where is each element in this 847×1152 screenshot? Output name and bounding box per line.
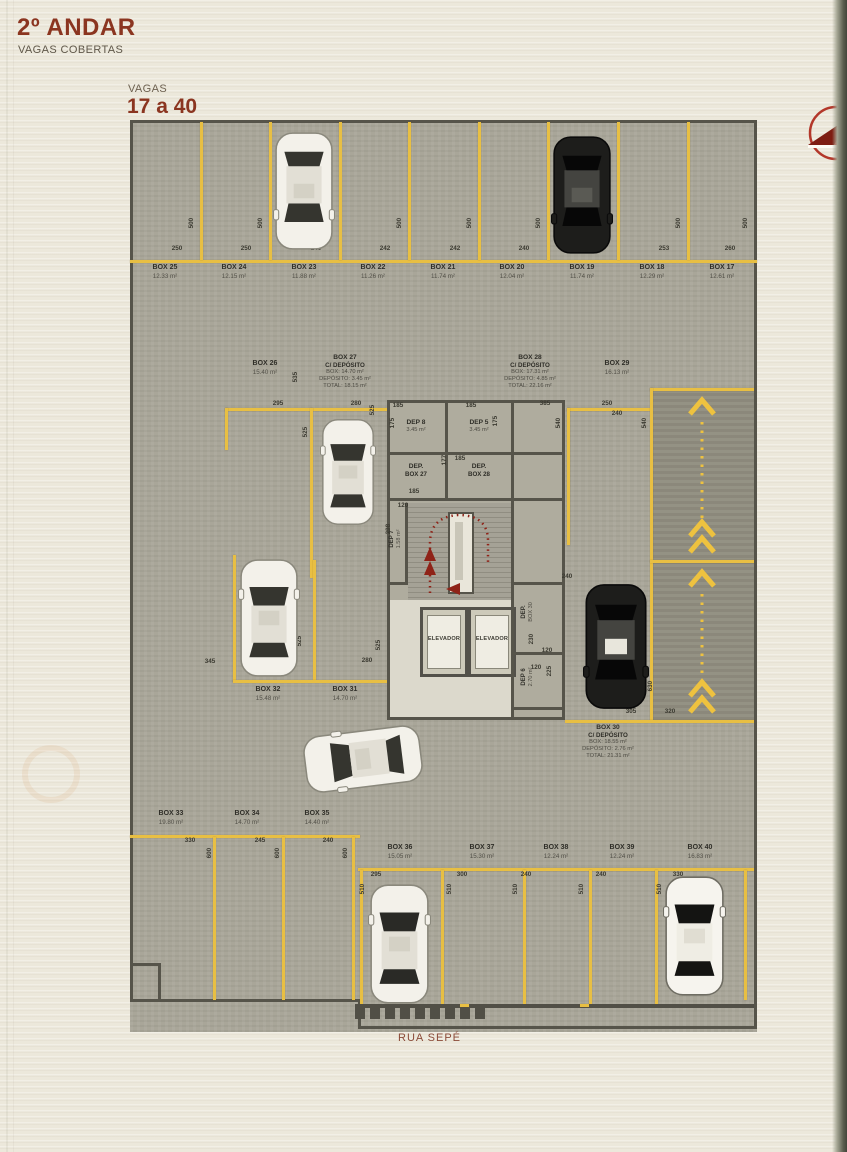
elevator-shaft: ELEVADOR xyxy=(420,607,468,677)
wall xyxy=(405,503,408,585)
wall xyxy=(358,1026,757,1029)
box-label: BOX 2211.26 m² xyxy=(361,264,386,281)
dim-label: 500 xyxy=(676,211,682,235)
box-label: BOX 3912.24 m² xyxy=(610,844,635,861)
box-label: BOX 1911.74 m² xyxy=(570,264,595,281)
parking-line xyxy=(589,870,592,1006)
dim-label: 540 xyxy=(642,411,648,435)
parking-line xyxy=(233,555,236,682)
dim-label: 298 xyxy=(386,517,392,541)
dim-label: 500 xyxy=(397,211,403,235)
parking-line xyxy=(200,122,203,260)
dep-box28-label: DEP.BOX 28 xyxy=(468,463,490,478)
elevator-label: ELEVADOR xyxy=(467,636,517,642)
parking-line xyxy=(310,408,313,578)
dim-label: 240 xyxy=(612,411,623,417)
dim-label: 300 xyxy=(457,872,468,878)
wall xyxy=(562,400,565,720)
box-label: BOX 3215.48 m² xyxy=(256,686,281,703)
parking-line xyxy=(547,122,550,260)
parking-line xyxy=(130,260,757,263)
dim-label: 120 xyxy=(398,503,409,509)
parking-line xyxy=(478,122,481,260)
dim-label: 500 xyxy=(743,211,749,235)
parking-line xyxy=(213,837,216,1000)
parking-line xyxy=(567,408,650,411)
wall xyxy=(387,400,390,720)
page-texture-line xyxy=(6,0,8,1152)
dim-label: 230 xyxy=(529,627,535,651)
wall xyxy=(511,400,514,720)
parking-line xyxy=(313,560,316,682)
parking-line xyxy=(617,122,620,260)
car xyxy=(238,557,300,679)
dim-label: 500 xyxy=(467,211,473,235)
dim-label: 320 xyxy=(665,709,676,715)
box-label: BOX 3812.24 m² xyxy=(544,844,569,861)
dim-label: 242 xyxy=(450,246,461,252)
dim-label: 240 xyxy=(596,872,607,878)
dim-label: 120 xyxy=(531,665,542,671)
wall xyxy=(387,582,408,585)
wall xyxy=(130,963,160,966)
car xyxy=(551,132,613,258)
dep5-label: DEP 53.45 m² xyxy=(469,419,488,434)
car xyxy=(583,575,649,718)
box-label: BOX 3414.70 m² xyxy=(235,810,260,827)
car xyxy=(663,872,726,1000)
dim-label: 500 xyxy=(536,211,542,235)
dim-label: 253 xyxy=(659,246,670,252)
car xyxy=(273,128,335,254)
box-label: BOX 2311.88 m² xyxy=(292,264,317,281)
dim-label: 250 xyxy=(172,246,183,252)
parking-line xyxy=(744,870,747,1000)
page-edge-shadow xyxy=(832,0,847,1152)
box-label: BOX 3715.30 m² xyxy=(470,844,495,861)
ramp-arrow-up-icon xyxy=(652,566,752,716)
parking-line xyxy=(687,122,690,260)
dim-label: 240 xyxy=(521,872,532,878)
wall xyxy=(130,999,361,1002)
dim-label: 280 xyxy=(351,401,362,407)
page-title: 2º ANDAR xyxy=(17,14,136,42)
floor-plan: ELEVADOR ELEVADOR DEP 83.45 m² DEP 53.45… xyxy=(130,120,757,1032)
box27-deposito-label: BOX 27C/ DEPÓSITO BOX: 14.70 m²DEPÓSITO:… xyxy=(319,354,371,390)
dim-label: 600 xyxy=(207,841,213,865)
dep-box27-label: DEP.BOX 27 xyxy=(405,463,427,478)
wall xyxy=(387,498,565,501)
dim-label: 345 xyxy=(205,659,216,665)
dim-label: 500 xyxy=(189,211,195,235)
box-label: BOX 1812.29 m² xyxy=(640,264,665,281)
vagas-label: VAGAS xyxy=(128,83,167,95)
dim-label: 535 xyxy=(293,365,299,389)
wall xyxy=(387,717,565,720)
car xyxy=(318,418,378,526)
box-label: BOX 3114.70 m² xyxy=(333,686,358,703)
dim-label: 185 xyxy=(466,403,477,409)
dim-label: 250 xyxy=(241,246,252,252)
dim-label: 185 xyxy=(393,403,404,409)
elevator-label: ELEVADOR xyxy=(419,636,469,642)
dim-label: 510 xyxy=(579,877,585,901)
wall xyxy=(513,707,565,710)
dim-label: 525 xyxy=(303,420,309,444)
dim-label: 525 xyxy=(376,633,382,657)
box-label: BOX 2012.04 m² xyxy=(500,264,525,281)
box-label: BOX 1712.61 m² xyxy=(710,264,735,281)
dim-label: 250 xyxy=(602,401,613,407)
parking-line xyxy=(441,870,444,1006)
dim-label: 510 xyxy=(513,877,519,901)
stair-direction-arrow-icon xyxy=(408,503,511,600)
dep-box30-label: DEP.BOX 30 xyxy=(521,592,535,632)
parking-line xyxy=(650,560,754,563)
box-label: BOX 3514.40 m² xyxy=(305,810,330,827)
dep6-label: DEP 62.70 m² xyxy=(521,657,535,697)
dim-label: 175 xyxy=(493,409,499,433)
elevator-shaft: ELEVADOR xyxy=(468,607,516,677)
parking-line xyxy=(233,680,388,683)
dep8-label: DEP 83.45 m² xyxy=(406,419,425,434)
dim-label: 500 xyxy=(258,211,264,235)
dim-label: 185 xyxy=(409,489,420,495)
dim-label: 600 xyxy=(275,841,281,865)
dim-label: 175 xyxy=(390,411,396,435)
dim-label: 240 xyxy=(562,574,573,580)
dim-label: 120 xyxy=(542,648,553,654)
dim-label: 510 xyxy=(360,877,366,901)
box30-deposito-label: BOX 30C/ DEPÓSITO BOX: 18.55 m²DEPÓSITO:… xyxy=(582,724,634,760)
elevator-cab xyxy=(475,615,509,669)
dim-label: 600 xyxy=(343,841,349,865)
dim-label: 510 xyxy=(447,877,453,901)
curb-mark xyxy=(580,1004,589,1007)
dim-label: 280 xyxy=(362,658,373,664)
curb-mark xyxy=(460,1004,469,1007)
dim-label: 295 xyxy=(371,872,382,878)
sidewalk-ticks xyxy=(355,1008,490,1019)
wall xyxy=(387,452,565,455)
wall xyxy=(513,582,565,585)
box-label: BOX 2111.74 m² xyxy=(431,264,456,281)
parking-line xyxy=(567,408,570,545)
parking-line xyxy=(225,408,387,411)
dim-label: 295 xyxy=(273,401,284,407)
elevator-cab xyxy=(427,615,461,669)
car xyxy=(297,721,430,798)
dim-label: 245 xyxy=(255,838,266,844)
dim-label: 330 xyxy=(185,838,196,844)
dim-label: 225 xyxy=(547,659,553,683)
dim-label: 240 xyxy=(519,246,530,252)
parking-line xyxy=(282,837,285,1000)
parking-line xyxy=(358,868,754,871)
ramp-arrow-up-icon xyxy=(652,392,752,558)
wall xyxy=(754,120,757,1029)
vagas-range: 17 a 40 xyxy=(127,95,197,119)
box-label: BOX 3319.80 m² xyxy=(159,810,184,827)
parking-line xyxy=(352,837,355,1000)
wall xyxy=(158,963,161,1002)
page: { "header": { "title": "2º ANDAR", "subt… xyxy=(0,0,847,1152)
parking-line xyxy=(269,122,272,260)
wall xyxy=(130,120,133,1002)
wall xyxy=(513,652,565,655)
page-texture-line xyxy=(13,0,14,1152)
dim-label: 177 xyxy=(442,448,448,472)
dim-label: 240 xyxy=(323,838,334,844)
page-subtitle: VAGAS COBERTAS xyxy=(18,44,123,56)
box-label: BOX 4016.83 m² xyxy=(688,844,713,861)
parking-line xyxy=(339,122,342,260)
parking-line xyxy=(225,408,228,450)
dim-label: 185 xyxy=(455,456,466,462)
parking-line xyxy=(408,122,411,260)
box-label: BOX 2916.13 m² xyxy=(605,360,630,377)
parking-line xyxy=(650,388,754,391)
dim-label: 260 xyxy=(725,246,736,252)
box28-deposito-label: BOX 28C/ DEPÓSITO BOX: 17.31 m²DEPÓSITO:… xyxy=(504,354,556,390)
parking-line xyxy=(650,388,653,722)
dim-label: 540 xyxy=(556,411,562,435)
bleed-through-circle xyxy=(22,745,80,803)
box-label: BOX 3615.05 m² xyxy=(388,844,413,861)
box-label: BOX 2615.40 m² xyxy=(253,360,278,377)
dim-label: 242 xyxy=(380,246,391,252)
box-label: BOX 2512.33 m² xyxy=(153,264,178,281)
car xyxy=(368,880,431,1008)
parking-line xyxy=(565,720,754,723)
wall xyxy=(130,120,757,123)
street-label: RUA SEPÉ xyxy=(398,1032,461,1044)
parking-line xyxy=(523,870,526,1006)
box-label: BOX 2412.15 m² xyxy=(222,264,247,281)
dim-label: 385 xyxy=(540,401,551,407)
